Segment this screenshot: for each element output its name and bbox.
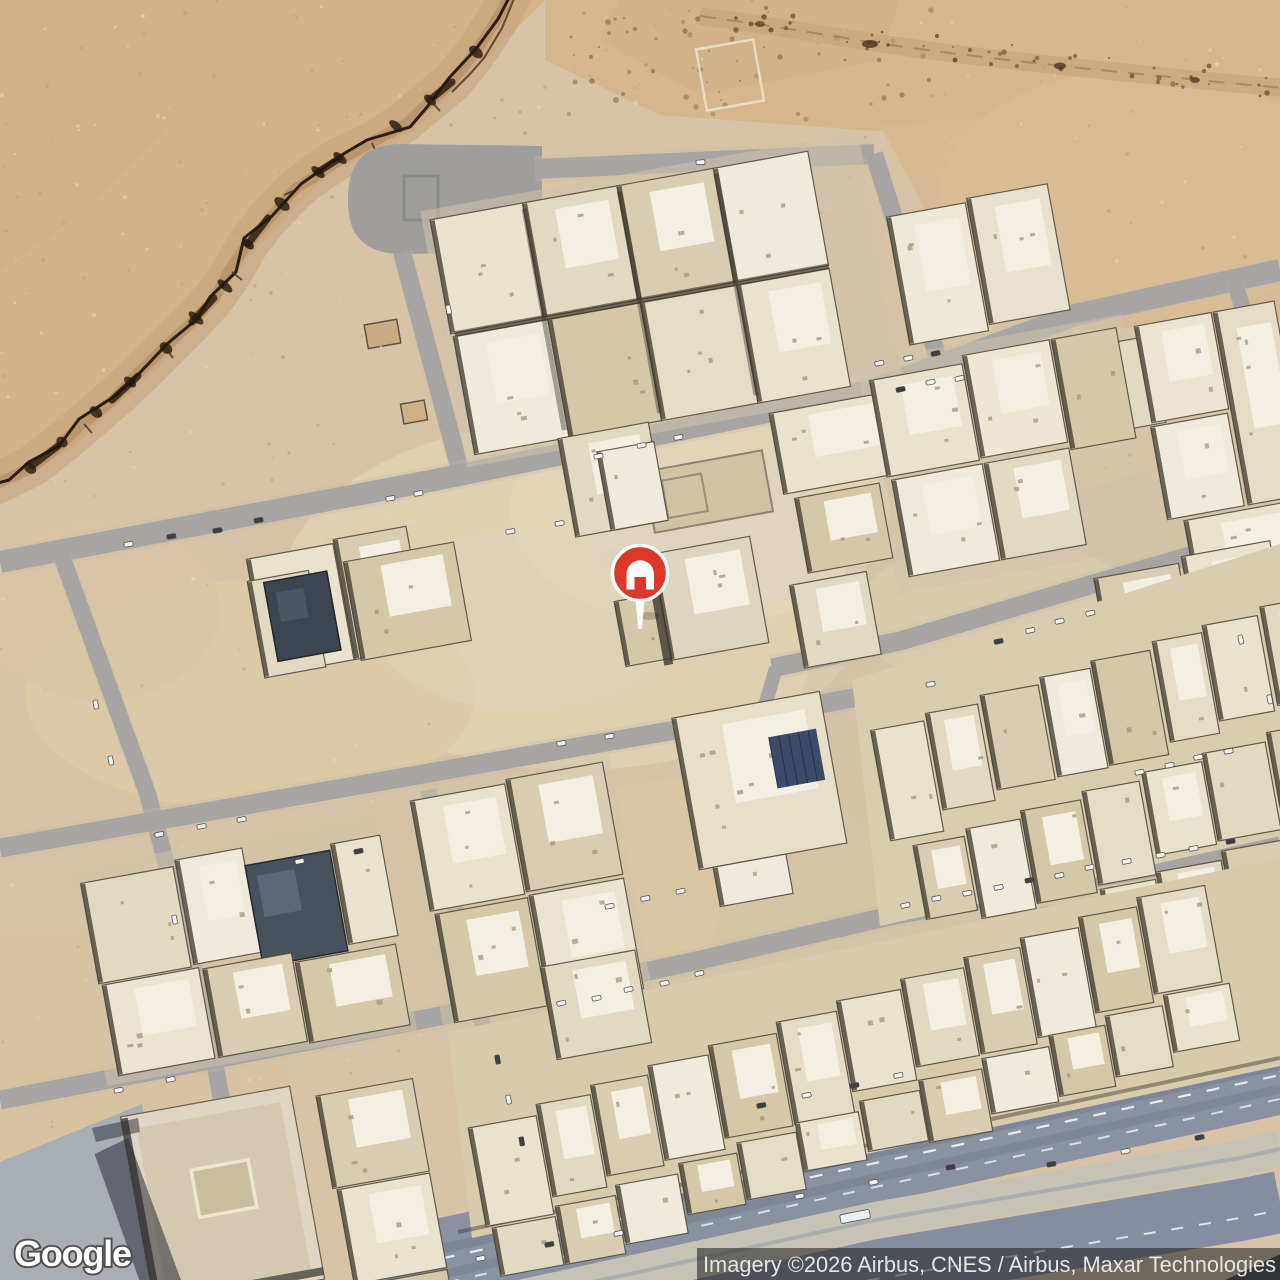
svg-text:Google: Google (14, 1233, 131, 1274)
svg-text:Imagery ©2026 Airbus, CNES / A: Imagery ©2026 Airbus, CNES / Airbus, Max… (703, 1252, 1276, 1277)
